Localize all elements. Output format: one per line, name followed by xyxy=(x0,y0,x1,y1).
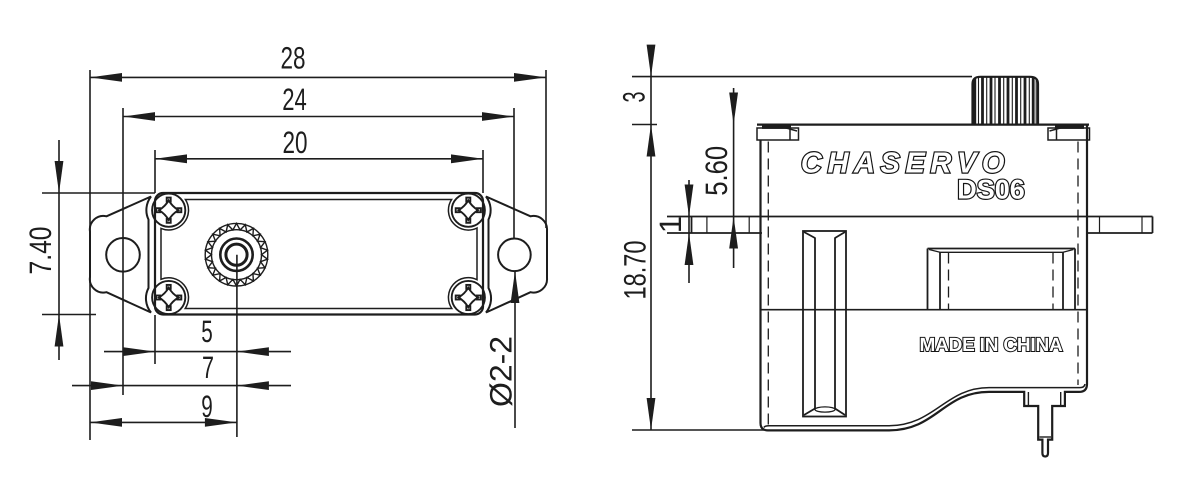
svg-text:MADE IN CHINA: MADE IN CHINA xyxy=(919,335,1063,356)
svg-text:9: 9 xyxy=(201,389,213,424)
svg-text:7.40: 7.40 xyxy=(23,227,58,275)
svg-text:Ø2-2: Ø2-2 xyxy=(484,336,519,407)
svg-text:20: 20 xyxy=(283,125,308,160)
svg-text:28: 28 xyxy=(281,41,306,76)
svg-text:5: 5 xyxy=(201,314,213,349)
svg-text:1: 1 xyxy=(653,216,688,233)
svg-text:DS06: DS06 xyxy=(957,175,1025,205)
svg-text:7: 7 xyxy=(202,350,214,385)
svg-text:18.70: 18.70 xyxy=(618,241,653,300)
svg-text:24: 24 xyxy=(282,82,307,117)
svg-text:5.60: 5.60 xyxy=(699,146,734,196)
svg-text:3: 3 xyxy=(617,92,652,103)
